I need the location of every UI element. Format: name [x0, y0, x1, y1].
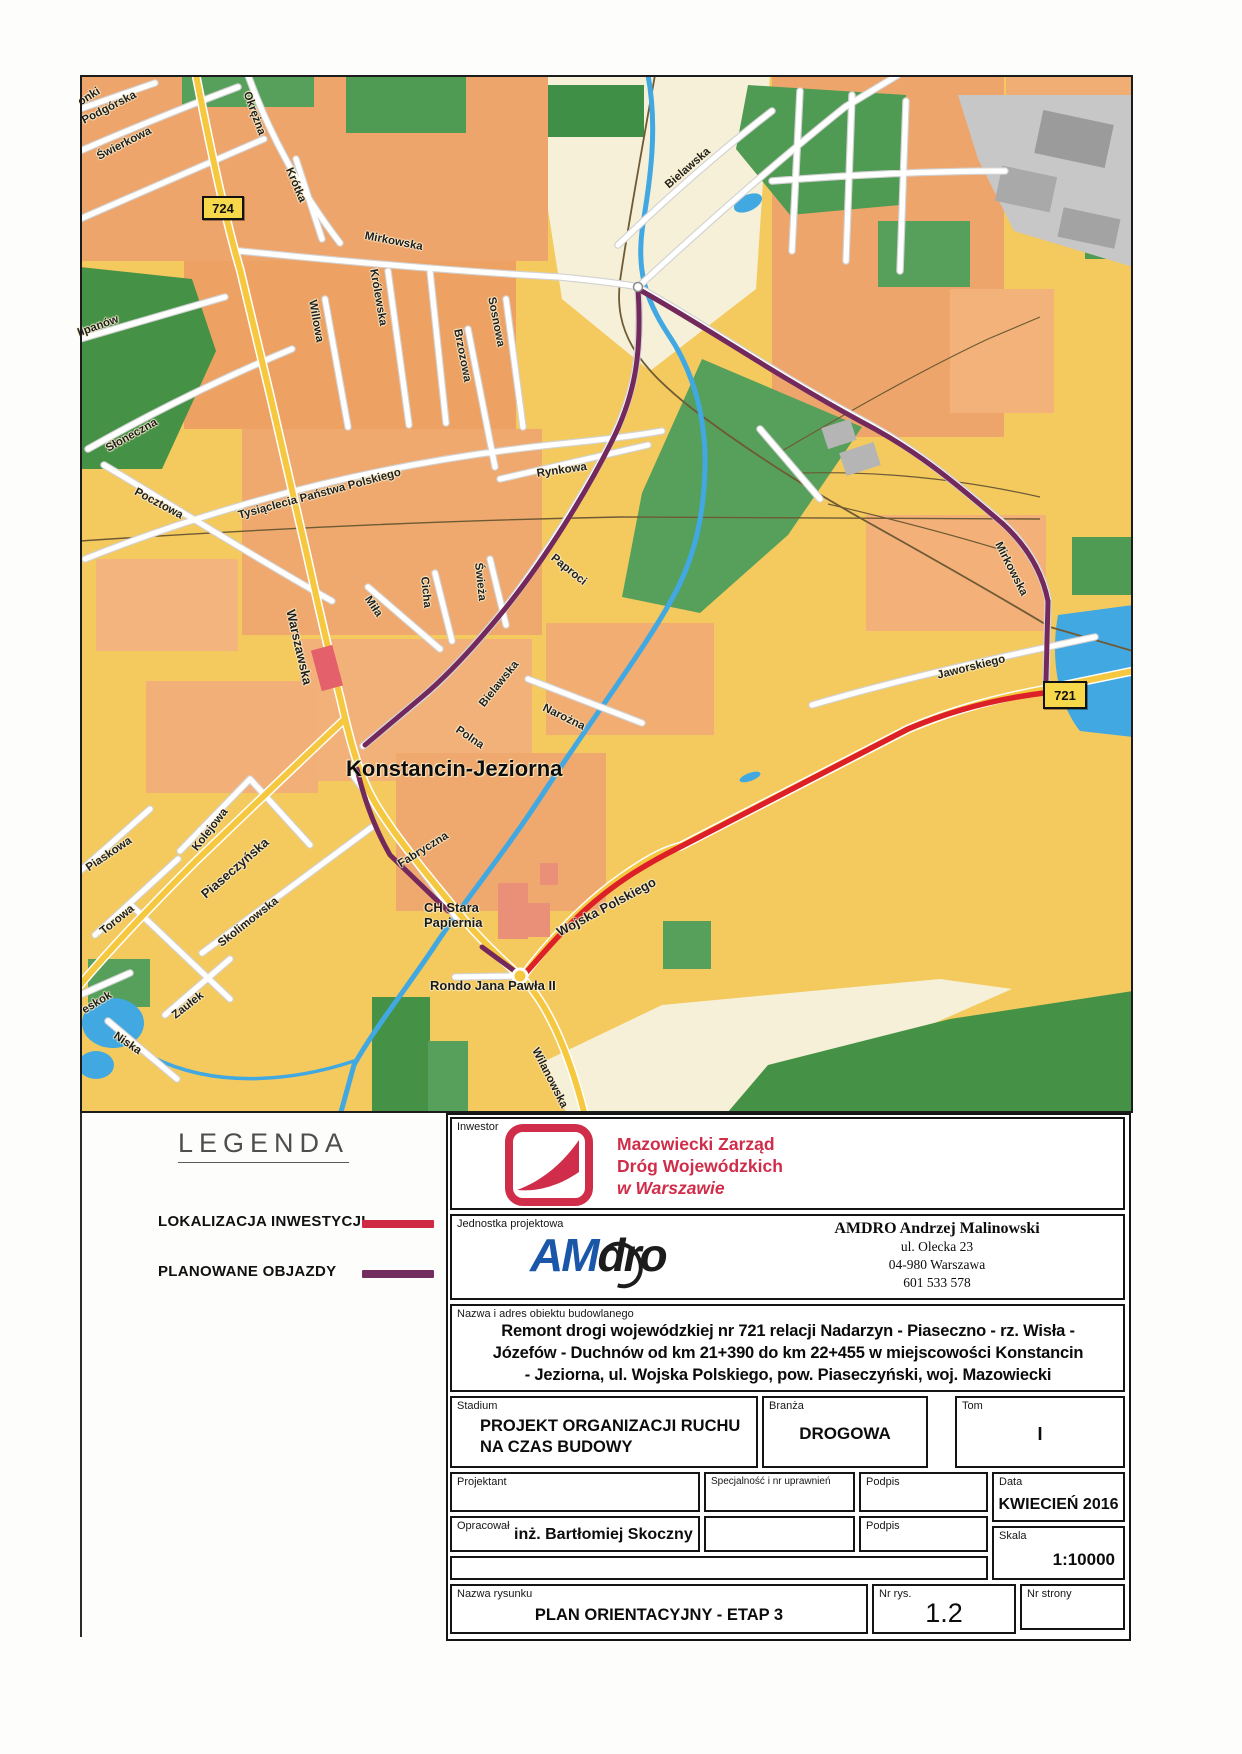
design-unit-addr2: 04-980 Warszawa — [772, 1256, 1102, 1274]
page-number-label: Nr strony — [1027, 1588, 1072, 1600]
investor-label: Inwestor — [457, 1121, 499, 1133]
volume-box: Tom I — [955, 1396, 1125, 1468]
branch-box: Branża DROGOWA — [762, 1396, 928, 1468]
signature-label-2: Podpis — [866, 1520, 900, 1532]
signature-box-2: Podpis — [859, 1516, 988, 1552]
amdro-logo-am: AM — [530, 1229, 598, 1281]
designer-label: Projektant — [457, 1476, 507, 1488]
date-label: Data — [999, 1476, 1022, 1488]
page-number-box: Nr strony — [1020, 1584, 1125, 1630]
scale-box: Skala 1:10000 — [992, 1526, 1125, 1580]
investor-name-line1: Mazowiecki Zarząd — [617, 1133, 783, 1155]
date-box: Data KWIECIEŃ 2016 — [992, 1472, 1125, 1522]
drawing-number-box: Nr rys. 1.2 — [872, 1584, 1016, 1634]
stage-box: Stadium PROJEKT ORGANIZACJI RUCHU NA CZA… — [450, 1396, 758, 1468]
amdro-logo: AMdro — [530, 1228, 666, 1282]
investor-name-line2: Dróg Wojewódzkich — [617, 1155, 783, 1177]
drawing-name-label: Nazwa rysunku — [457, 1588, 532, 1600]
prepared-by-label: Opracował — [457, 1520, 510, 1532]
investor-name-line3: w Warszawie — [617, 1177, 783, 1199]
legend-swatch-purple — [362, 1270, 434, 1278]
route-721-badge: 721 — [1043, 681, 1087, 709]
speciality-label: Specjalność i nr uprawnień — [711, 1476, 831, 1487]
volume-value: I — [957, 1424, 1123, 1445]
designer-box: Projektant — [450, 1472, 700, 1512]
drawing-name-box: Nazwa rysunku PLAN ORIENTACYJNY - ETAP 3 — [450, 1584, 868, 1634]
volume-label: Tom — [962, 1400, 983, 1412]
project-name-line3: - Jeziorna, ul. Wojska Polskiego, pow. P… — [456, 1364, 1120, 1386]
design-unit-phone: 601 533 578 — [772, 1274, 1102, 1292]
map-graphics — [80, 75, 1133, 1113]
mall-label: CH Stara Papiernia — [424, 900, 483, 930]
investor-name: Mazowiecki Zarząd Dróg Wojewódzkich w Wa… — [617, 1133, 783, 1199]
prepared-by-value: inż. Bartłomiej Skoczny — [514, 1526, 693, 1544]
legend-item-investment: LOKALIZACJA INWESTYCJI — [158, 1213, 366, 1230]
roundabout-label: Rondo Jana Pawła II — [430, 978, 556, 993]
sheet: { "map": { "city": "Konstancin-Jeziorna"… — [0, 0, 1242, 1754]
signature-box-1: Podpis — [859, 1472, 988, 1512]
design-unit-details: AMDRO Andrzej Malinowski ul. Olecka 23 0… — [772, 1220, 1102, 1292]
scale-label: Skala — [999, 1530, 1027, 1542]
mzdw-logo-swoosh — [513, 1132, 585, 1198]
city-label: Konstancin-Jeziorna — [346, 756, 562, 782]
mzdw-logo — [505, 1124, 593, 1206]
drawing-number-value: 1.2 — [874, 1598, 1014, 1629]
speciality-box-2 — [704, 1516, 855, 1552]
design-unit-name: AMDRO Andrzej Malinowski — [772, 1220, 1102, 1238]
speciality-box: Specjalność i nr uprawnień — [704, 1472, 855, 1512]
orientation-map — [80, 75, 1133, 1113]
scale-value: 1:10000 — [1053, 1550, 1115, 1570]
drawing-name-value: PLAN ORIENTACYJNY - ETAP 3 — [452, 1606, 866, 1625]
project-name-label: Nazwa i adres obiektu budowlanego — [457, 1308, 634, 1320]
stage-value: PROJEKT ORGANIZACJI RUCHU NA CZAS BUDOWY — [480, 1416, 745, 1458]
prepared-by-box: Opracował inż. Bartłomiej Skoczny — [450, 1516, 700, 1552]
sheet-frame-left — [80, 75, 82, 1637]
stage-label: Stadium — [457, 1400, 497, 1412]
branch-label: Branża — [769, 1400, 804, 1412]
route-724-badge: 724 — [202, 196, 244, 220]
project-name-text: Remont drogi wojewódzkiej nr 721 relacji… — [456, 1320, 1120, 1386]
branch-value: DROGOWA — [764, 1424, 926, 1444]
legend-title: LEGENDA — [178, 1128, 349, 1163]
amdro-logo-dro: dro — [598, 1229, 666, 1281]
spare-row-box — [450, 1556, 988, 1580]
legend-item-detours: PLANOWANE OBJAZDY — [158, 1263, 336, 1280]
signature-label-1: Podpis — [866, 1476, 900, 1488]
date-value: KWIECIEŃ 2016 — [994, 1496, 1123, 1514]
project-name-line2: Józefów - Duchnów od km 21+390 do km 22+… — [456, 1342, 1120, 1364]
route-junction-dot — [634, 283, 643, 292]
project-name-line1: Remont drogi wojewódzkiej nr 721 relacji… — [456, 1320, 1120, 1342]
design-unit-addr1: ul. Olecka 23 — [772, 1238, 1102, 1256]
legend-swatch-red — [362, 1220, 434, 1228]
